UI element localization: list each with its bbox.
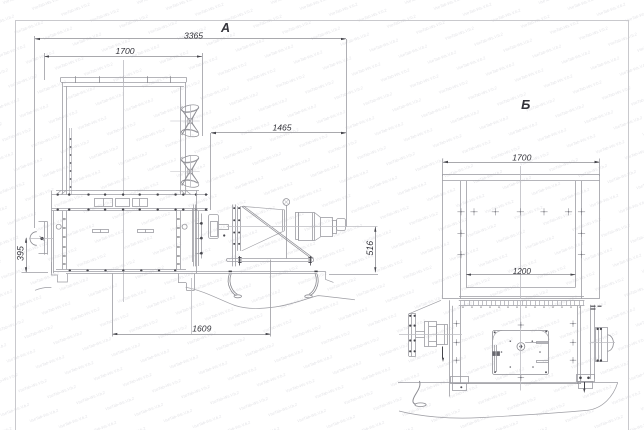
svg-text:1200: 1200 (513, 267, 532, 276)
svg-text:A: A (220, 21, 230, 35)
svg-text:1700: 1700 (512, 152, 531, 162)
svg-text:Б: Б (521, 97, 530, 112)
svg-text:395: 395 (16, 246, 26, 261)
svg-text:516: 516 (365, 241, 375, 256)
svg-text:1700: 1700 (115, 46, 134, 56)
svg-text:3365: 3365 (184, 31, 203, 41)
svg-text:1609: 1609 (192, 323, 211, 333)
svg-text:1465: 1465 (272, 123, 291, 133)
